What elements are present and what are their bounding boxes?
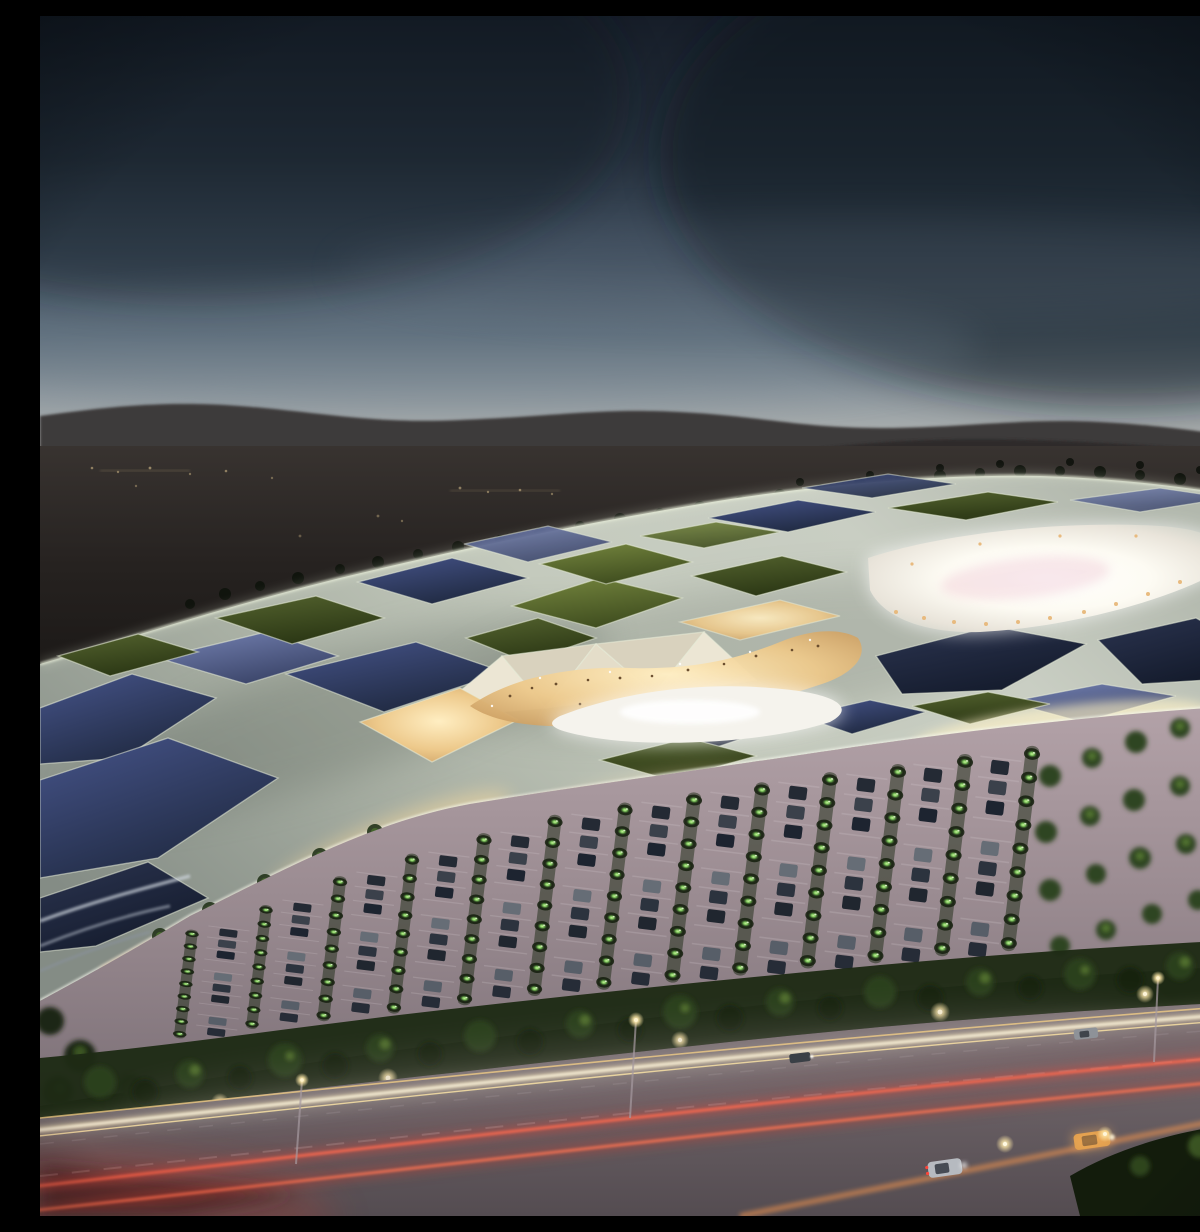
vignette [40,16,1200,1216]
architectural-rendering [40,16,1200,1216]
